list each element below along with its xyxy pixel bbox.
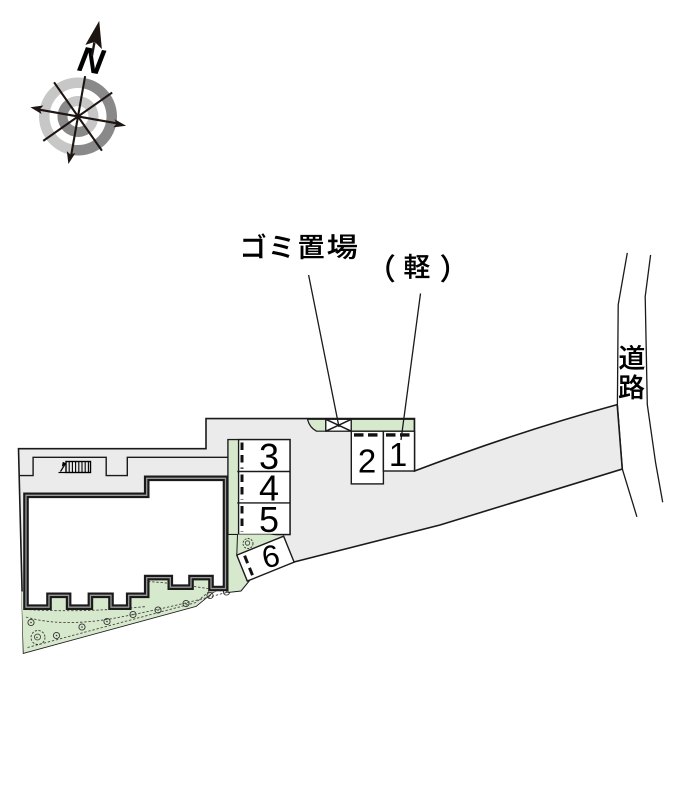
svg-text:5: 5 bbox=[259, 499, 279, 540]
svg-text:1: 1 bbox=[389, 436, 407, 473]
svg-text:2: 2 bbox=[358, 443, 376, 480]
